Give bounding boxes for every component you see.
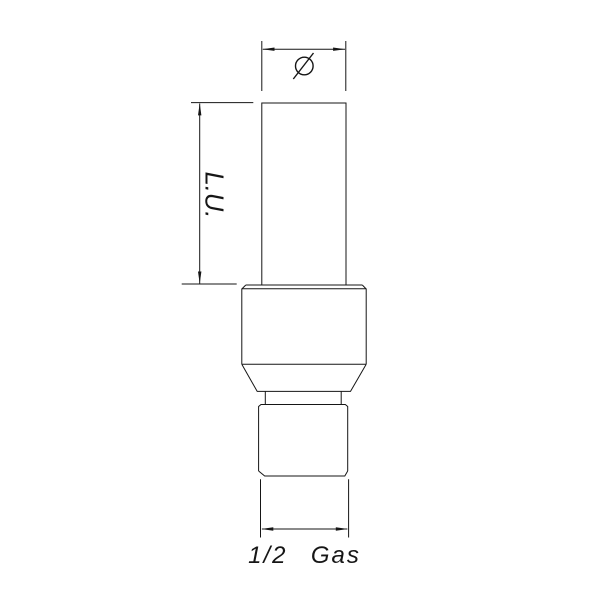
svg-text:1/2 Gas: 1/2 Gas bbox=[248, 542, 361, 569]
svg-text:L.U.: L.U. bbox=[200, 172, 228, 219]
